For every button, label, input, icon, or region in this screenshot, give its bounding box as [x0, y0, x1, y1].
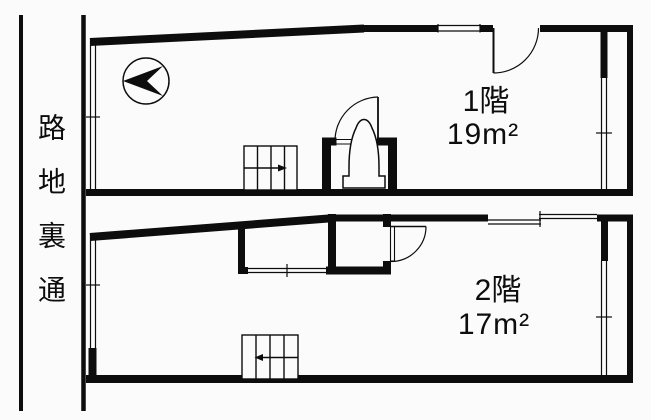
- floorplan-screenshot: 路地裏通 1階 19m² 2階 17m²: [0, 0, 651, 420]
- closet-low-window: [248, 264, 326, 277]
- floor2-staircase: [242, 335, 298, 379]
- door-swing-arc: [391, 227, 426, 262]
- door-swing-arc: [494, 28, 539, 73]
- floor2-name-label: 2階: [460, 275, 536, 307]
- floor1-name-label: 1階: [448, 86, 524, 118]
- floor2-closet-door: [391, 227, 427, 262]
- floor2-plan: [86, 211, 633, 383]
- floor2-top-wall-slanted: [90, 218, 335, 237]
- floor2-left-window: [86, 236, 100, 349]
- floor1-plan: [86, 24, 633, 196]
- floor2-closet-middle: [326, 214, 391, 274]
- floor2-top-sliding-window: [488, 211, 597, 227]
- floor1-right-window: [596, 78, 612, 190]
- door-panel: [391, 227, 395, 262]
- floor1-top-wall-slanted: [90, 29, 364, 43]
- floor1-entrance-door: [494, 28, 539, 73]
- floor1-toilet-room: [322, 97, 397, 192]
- floor2-closet-left: [238, 225, 326, 277]
- floor2-area-label: 17m²: [450, 309, 538, 341]
- floor1-left-window: [86, 41, 100, 191]
- compass-needle: [123, 66, 163, 96]
- floor1-top-window: [438, 24, 480, 33]
- floor1-staircase: [244, 146, 297, 190]
- north-arrow-icon: [123, 58, 169, 104]
- road-label: 路地裏通: [36, 113, 64, 329]
- floor1-area-label: 19m²: [439, 119, 527, 151]
- floorplan-drawing: [0, 0, 651, 420]
- floor2-right-window: [596, 261, 612, 376]
